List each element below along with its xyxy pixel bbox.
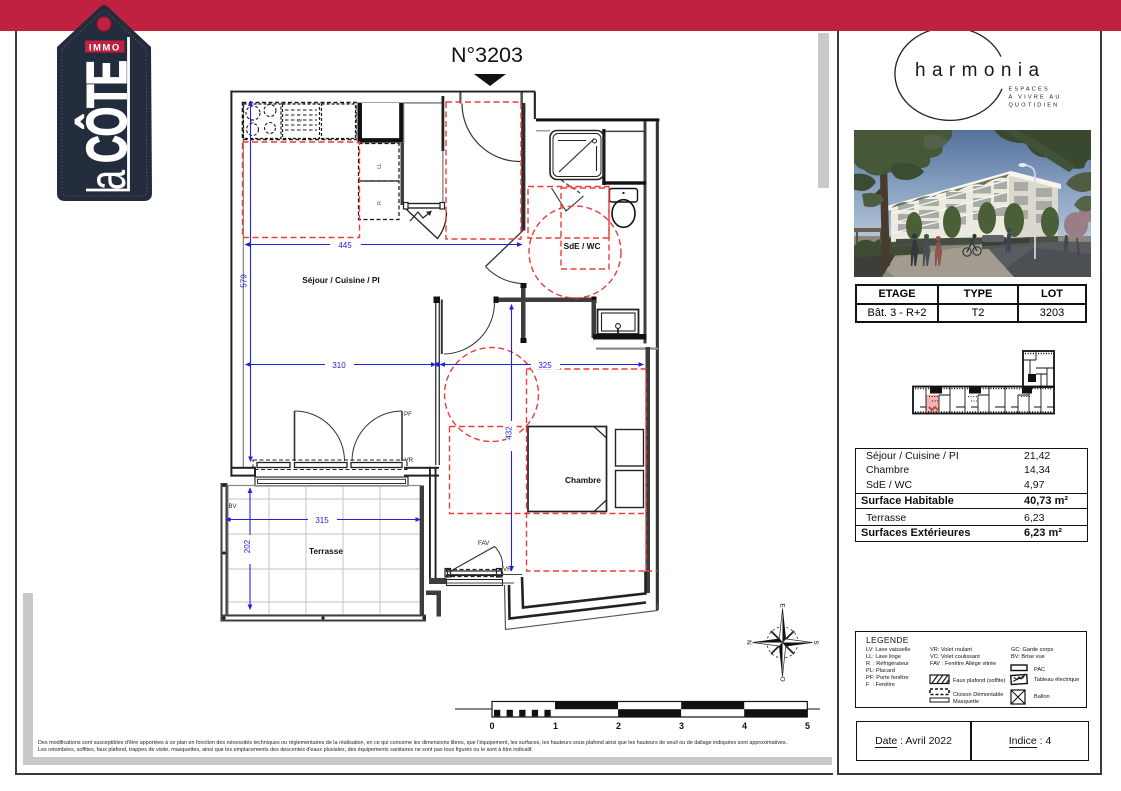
svg-text:N: N bbox=[745, 640, 752, 645]
svg-text:LL: LL bbox=[377, 163, 383, 169]
svg-text:315: 315 bbox=[315, 516, 329, 525]
svg-text:VR: VR bbox=[503, 566, 512, 573]
svg-text:C: C bbox=[251, 119, 255, 124]
svg-text:SdE / WC: SdE / WC bbox=[564, 241, 601, 251]
svg-text:310: 310 bbox=[332, 361, 346, 370]
svg-text:Terrasse: Terrasse bbox=[309, 546, 343, 556]
svg-text:579: 579 bbox=[240, 274, 249, 288]
svg-text:QUOTIDIEN: QUOTIDIEN bbox=[1009, 103, 1060, 109]
svg-text:FAV: FAV bbox=[478, 540, 490, 547]
svg-text:À VIVRE AU: À VIVRE AU bbox=[1009, 94, 1062, 101]
svg-text:202: 202 bbox=[243, 539, 252, 553]
svg-text:Chambre: Chambre bbox=[565, 475, 601, 485]
svg-text:LV: LV bbox=[297, 118, 302, 123]
svg-text:S: S bbox=[812, 640, 819, 645]
svg-text:R: R bbox=[377, 201, 383, 205]
svg-text:0: 0 bbox=[489, 721, 494, 731]
svg-text:E: E bbox=[779, 603, 786, 608]
svg-text:O: O bbox=[779, 676, 786, 681]
svg-text:1: 1 bbox=[553, 721, 558, 731]
svg-text:ESPACES: ESPACES bbox=[1009, 87, 1050, 93]
svg-text:2: 2 bbox=[616, 721, 621, 731]
svg-text:445: 445 bbox=[338, 241, 352, 250]
svg-text:PF: PF bbox=[404, 411, 412, 418]
svg-text:5: 5 bbox=[805, 721, 810, 731]
svg-text:BV: BV bbox=[229, 504, 237, 510]
svg-text:Séjour / Cuisine / PI: Séjour / Cuisine / PI bbox=[302, 275, 379, 285]
svg-text:325: 325 bbox=[538, 361, 552, 370]
svg-text:432: 432 bbox=[505, 426, 514, 440]
svg-text:3: 3 bbox=[679, 721, 684, 731]
svg-text:harmonia: harmonia bbox=[915, 60, 1045, 81]
svg-text:4: 4 bbox=[742, 721, 747, 731]
